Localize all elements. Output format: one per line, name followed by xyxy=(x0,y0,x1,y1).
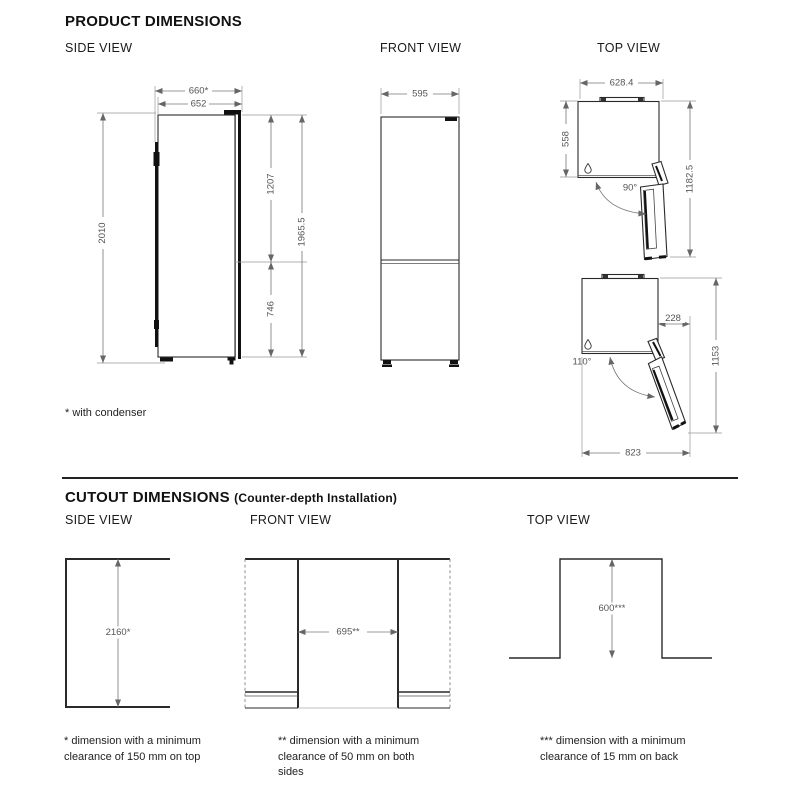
hinge-plate xyxy=(603,275,608,278)
cutout-front-view-drawing: 695** xyxy=(245,559,450,708)
left-foot-pad xyxy=(382,365,392,368)
hinge-plate xyxy=(601,98,606,101)
dim-depth-door-open-90: 1182.5 xyxy=(685,165,696,193)
dim-depth-body: 558 xyxy=(561,131,572,147)
dim-door-upper: 1207 xyxy=(266,173,277,194)
hinge-plate xyxy=(638,275,643,278)
product-top-view-110-drawing: 110° 228 1153 823 xyxy=(569,275,722,459)
condenser-block xyxy=(154,152,160,166)
product-side-view-drawing: 660* 652 2010 1207 746 1965.5 xyxy=(97,86,308,365)
hinge-plate xyxy=(638,98,643,101)
door-open-110 xyxy=(648,339,686,430)
fridge-front-body xyxy=(381,117,459,360)
dim-height-total: 2010 xyxy=(97,222,108,243)
door-bottom-mark xyxy=(681,422,685,424)
dim-width-overall: 628.4 xyxy=(610,78,634,89)
compressor-detail xyxy=(154,320,159,329)
right-foot xyxy=(450,360,458,364)
cutout-side-view-drawing: 2160* xyxy=(66,559,170,707)
dim-depth-door-open-110: 1153 xyxy=(711,346,722,366)
technical-drawing: 660* 652 2010 1207 746 1965.5 xyxy=(0,0,800,800)
dim-depth-with-condenser: 660* xyxy=(189,86,209,97)
right-foot-pad xyxy=(449,365,459,368)
dim-cutout-width: 695** xyxy=(336,627,360,638)
dim-door-protrusion: 228 xyxy=(665,313,681,324)
back-panel xyxy=(600,98,644,102)
cutout-top-view-drawing: 600*** xyxy=(509,559,712,658)
dim-angle-90: 90° xyxy=(623,183,638,194)
door-bottom-mark xyxy=(645,258,652,259)
door-bottom-mark xyxy=(659,257,666,258)
dim-width-door-open: 823 xyxy=(625,448,641,459)
front-foot-pad xyxy=(230,361,234,365)
door-top-cap xyxy=(224,110,241,115)
dim-width: 595 xyxy=(412,89,428,100)
fridge-top-body xyxy=(582,279,658,354)
dim-cutout-depth: 600*** xyxy=(599,603,626,614)
dim-door-lower: 746 xyxy=(266,301,277,317)
left-foot xyxy=(383,360,391,364)
rear-wheel xyxy=(160,358,173,362)
fridge-top-body xyxy=(578,102,659,178)
front-foot xyxy=(228,358,236,361)
back-panel xyxy=(602,275,644,279)
dim-cutout-height: 2160* xyxy=(106,627,131,638)
side-feet xyxy=(160,358,236,365)
dim-depth: 652 xyxy=(191,99,207,110)
display-panel xyxy=(445,118,457,122)
swing-arc-110 xyxy=(610,357,655,397)
product-front-view-drawing: 595 xyxy=(381,88,459,367)
page: PRODUCT DIMENSIONS SIDE VIEW FRONT VIEW … xyxy=(0,0,800,800)
fridge-side-body xyxy=(158,115,235,357)
front-feet xyxy=(382,360,459,367)
dim-height-back: 1965.5 xyxy=(297,217,308,246)
product-top-view-90-drawing: 90° 628.4 558 1182.5 xyxy=(560,78,696,260)
